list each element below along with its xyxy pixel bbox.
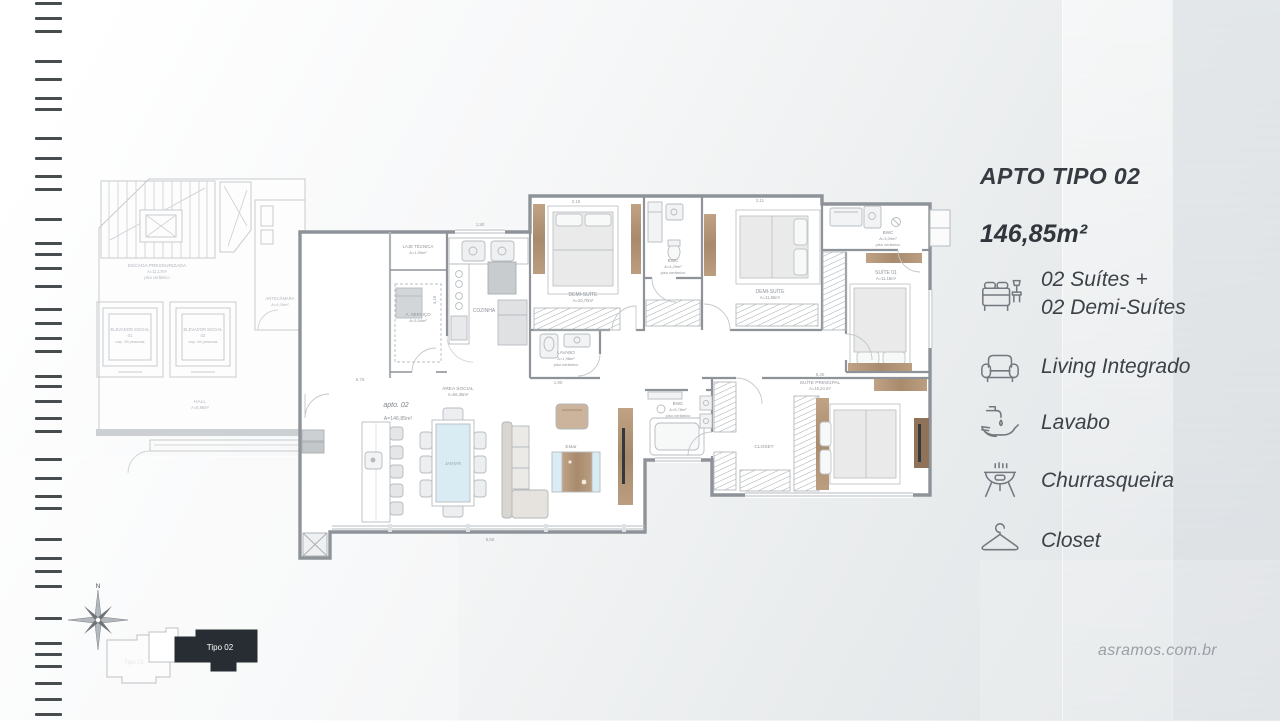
svg-text:2,11: 2,11 [756, 198, 765, 203]
film-strip-mark [35, 458, 62, 461]
film-strip-mark [35, 2, 62, 5]
svg-text:ELEVADOR SOCIAL: ELEVADOR SOCIAL [110, 327, 150, 332]
film-strip-mark [35, 308, 62, 311]
svg-text:A=15,24 m²: A=15,24 m² [809, 386, 831, 391]
svg-text:piso cerâmico: piso cerâmico [666, 413, 691, 418]
film-strip-mark [35, 385, 62, 388]
feature-churrasqueira-label: Churrasqueira [1041, 467, 1174, 495]
svg-text:ANTECÂMARA: ANTECÂMARA [265, 296, 294, 301]
film-strip-mark [35, 188, 62, 191]
feature-lavabo: Lavabo [975, 400, 1110, 446]
svg-text:A=3,09m²: A=3,09m² [879, 236, 897, 241]
film-strip-mark [35, 78, 62, 81]
keyplan: N Tipo 01 Tipo 02 [60, 582, 280, 704]
svg-text:CLOSET: CLOSET [754, 444, 773, 450]
film-strip-mark [35, 30, 62, 33]
film-strip-mark [35, 97, 62, 100]
feature-suites: 02 Suítes + 02 Demi-Suítes [975, 266, 1186, 323]
svg-text:A=11,55m²: A=11,55m² [760, 295, 781, 300]
film-strip-mark [35, 713, 62, 716]
film-strip-mark [35, 60, 62, 63]
svg-text:5,40: 5,40 [816, 372, 825, 377]
film-strip-mark [35, 242, 62, 245]
svg-text:A=3,54m²: A=3,54m² [409, 318, 427, 323]
svg-text:cap. 08 pessoas: cap. 08 pessoas [188, 339, 217, 344]
film-strip-mark [35, 175, 62, 178]
svg-text:ELEVADOR SOCIAL: ELEVADOR SOCIAL [183, 327, 223, 332]
svg-text:A=8,95m²: A=8,95m² [191, 405, 209, 410]
feature-living-label: Living Integrado [1041, 353, 1190, 381]
svg-text:cap. 08 pessoas: cap. 08 pessoas [115, 339, 144, 344]
film-strip-mark [35, 157, 62, 160]
feature-churrasqueira: Churrasqueira [975, 458, 1174, 504]
film-strip-mark [35, 337, 62, 340]
film-strip-marks [35, 0, 63, 720]
film-strip-mark [35, 495, 62, 498]
hanger-icon [975, 518, 1025, 564]
feature-lavabo-label: Lavabo [1041, 409, 1110, 437]
svg-text:1,80: 1,80 [476, 222, 485, 227]
film-strip-mark [35, 477, 62, 480]
svg-text:Estar: Estar [565, 444, 577, 450]
film-strip-mark [35, 430, 62, 433]
svg-text:1,90: 1,90 [554, 380, 563, 385]
svg-text:SUÍTE PRINCIPAL: SUÍTE PRINCIPAL [800, 379, 841, 386]
svg-text:A=11,17m²: A=11,17m² [147, 269, 167, 274]
keyplan-inactive-label: Tipo 01 [124, 660, 144, 666]
svg-text:A=4,29m²: A=4,29m² [664, 264, 682, 269]
svg-text:2,15: 2,15 [572, 199, 581, 204]
svg-text:piso cerâmico: piso cerâmico [554, 362, 579, 367]
svg-text:SUÍTE 01: SUÍTE 01 [875, 269, 897, 276]
film-strip-mark [35, 375, 62, 378]
film-strip-mark [35, 538, 62, 541]
svg-text:LAVABO: LAVABO [557, 350, 575, 355]
svg-text:A=1,55m²: A=1,55m² [409, 250, 427, 255]
film-strip-mark [35, 557, 62, 560]
feature-closet-label: Closet [1041, 527, 1101, 555]
film-strip-mark [35, 322, 62, 325]
floor-plan: ESCADA PRESSURIZADA A=11,17m² piso cerâm… [88, 168, 968, 580]
film-strip-mark [35, 17, 62, 20]
svg-text:COZINHA: COZINHA [473, 308, 496, 314]
website-url: asramos.com.br [1098, 642, 1217, 660]
svg-text:A=146,85m²: A=146,85m² [384, 416, 413, 422]
keyplan-active-label: Tipo 02 [207, 643, 234, 652]
compass-north-label: N [96, 583, 101, 590]
svg-text:A=4,09m²: A=4,09m² [271, 302, 289, 307]
svg-text:BWC: BWC [673, 401, 684, 406]
svg-text:ÁREA SOCIAL: ÁREA SOCIAL [442, 385, 474, 392]
film-strip-mark [35, 653, 62, 656]
svg-text:LAJE TÉCNICA: LAJE TÉCNICA [403, 244, 434, 249]
film-strip-mark [35, 682, 62, 685]
film-strip-mark [35, 253, 62, 256]
faucet-hand-icon [975, 400, 1025, 446]
svg-text:apto. 02: apto. 02 [383, 402, 408, 409]
svg-text:DEMI-SUÍTE: DEMI-SUÍTE [569, 291, 599, 298]
film-strip-mark [35, 507, 62, 510]
film-strip-mark [35, 285, 62, 288]
feature-closet: Closet [975, 518, 1101, 564]
film-strip-mark [35, 617, 62, 620]
bed-icon [975, 271, 1025, 317]
svg-text:piso cerâmico: piso cerâmico [876, 242, 901, 247]
feature-suites-label: 02 Suítes + 02 Demi-Suítes [1041, 266, 1186, 323]
film-strip-mark [35, 642, 62, 645]
svg-text:01: 01 [128, 333, 133, 338]
svg-text:A=11,15m²: A=11,15m² [876, 276, 897, 281]
svg-text:4,16: 4,16 [432, 295, 437, 304]
film-strip-mark [35, 108, 62, 111]
film-strip-mark [35, 400, 62, 403]
feature-living: Living Integrado [975, 344, 1190, 390]
film-strip-mark [35, 137, 62, 140]
svg-text:BWC: BWC [883, 230, 894, 235]
suite-01-closet-band [823, 252, 846, 330]
film-strip-mark [35, 665, 62, 668]
film-strip-mark [35, 698, 62, 701]
svg-text:02: 02 [201, 333, 206, 338]
armchair-icon [975, 344, 1025, 390]
svg-text:A=1,98m²: A=1,98m² [557, 356, 575, 361]
film-strip-mark [35, 218, 62, 221]
background-sheet-edge-2 [980, 560, 1280, 720]
svg-text:5,76: 5,76 [356, 377, 365, 382]
svg-text:A=10,70m²: A=10,70m² [573, 298, 594, 303]
svg-text:DEMI-SUÍTE: DEMI-SUÍTE [756, 288, 786, 295]
svg-text:A=56,35m²: A=56,35m² [448, 392, 469, 397]
svg-text:A. SERVIÇO: A. SERVIÇO [405, 312, 431, 317]
grill-icon [975, 458, 1025, 504]
unit-area-value: 146,85m² [980, 220, 1270, 249]
film-strip-mark [35, 570, 62, 573]
svg-text:A=5,76m²: A=5,76m² [669, 407, 687, 412]
svg-text:JANTAR: JANTAR [445, 461, 461, 466]
keyplan-buildings: Tipo 01 Tipo 02 [107, 628, 257, 683]
film-strip-mark [35, 585, 62, 588]
svg-text:BWC: BWC [668, 258, 679, 263]
page-title: APTO TIPO 02 [980, 163, 1270, 190]
svg-text:piso cerâmico: piso cerâmico [144, 275, 170, 280]
svg-text:piso cerâmico: piso cerâmico [661, 270, 686, 275]
film-strip-mark [35, 267, 62, 270]
svg-text:6,60: 6,60 [486, 537, 495, 542]
info-panel: APTO TIPO 02 146,85m² [980, 163, 1270, 249]
keyplan-building-middle [149, 628, 178, 662]
film-strip-mark [35, 350, 62, 353]
film-strip-mark [35, 417, 62, 420]
